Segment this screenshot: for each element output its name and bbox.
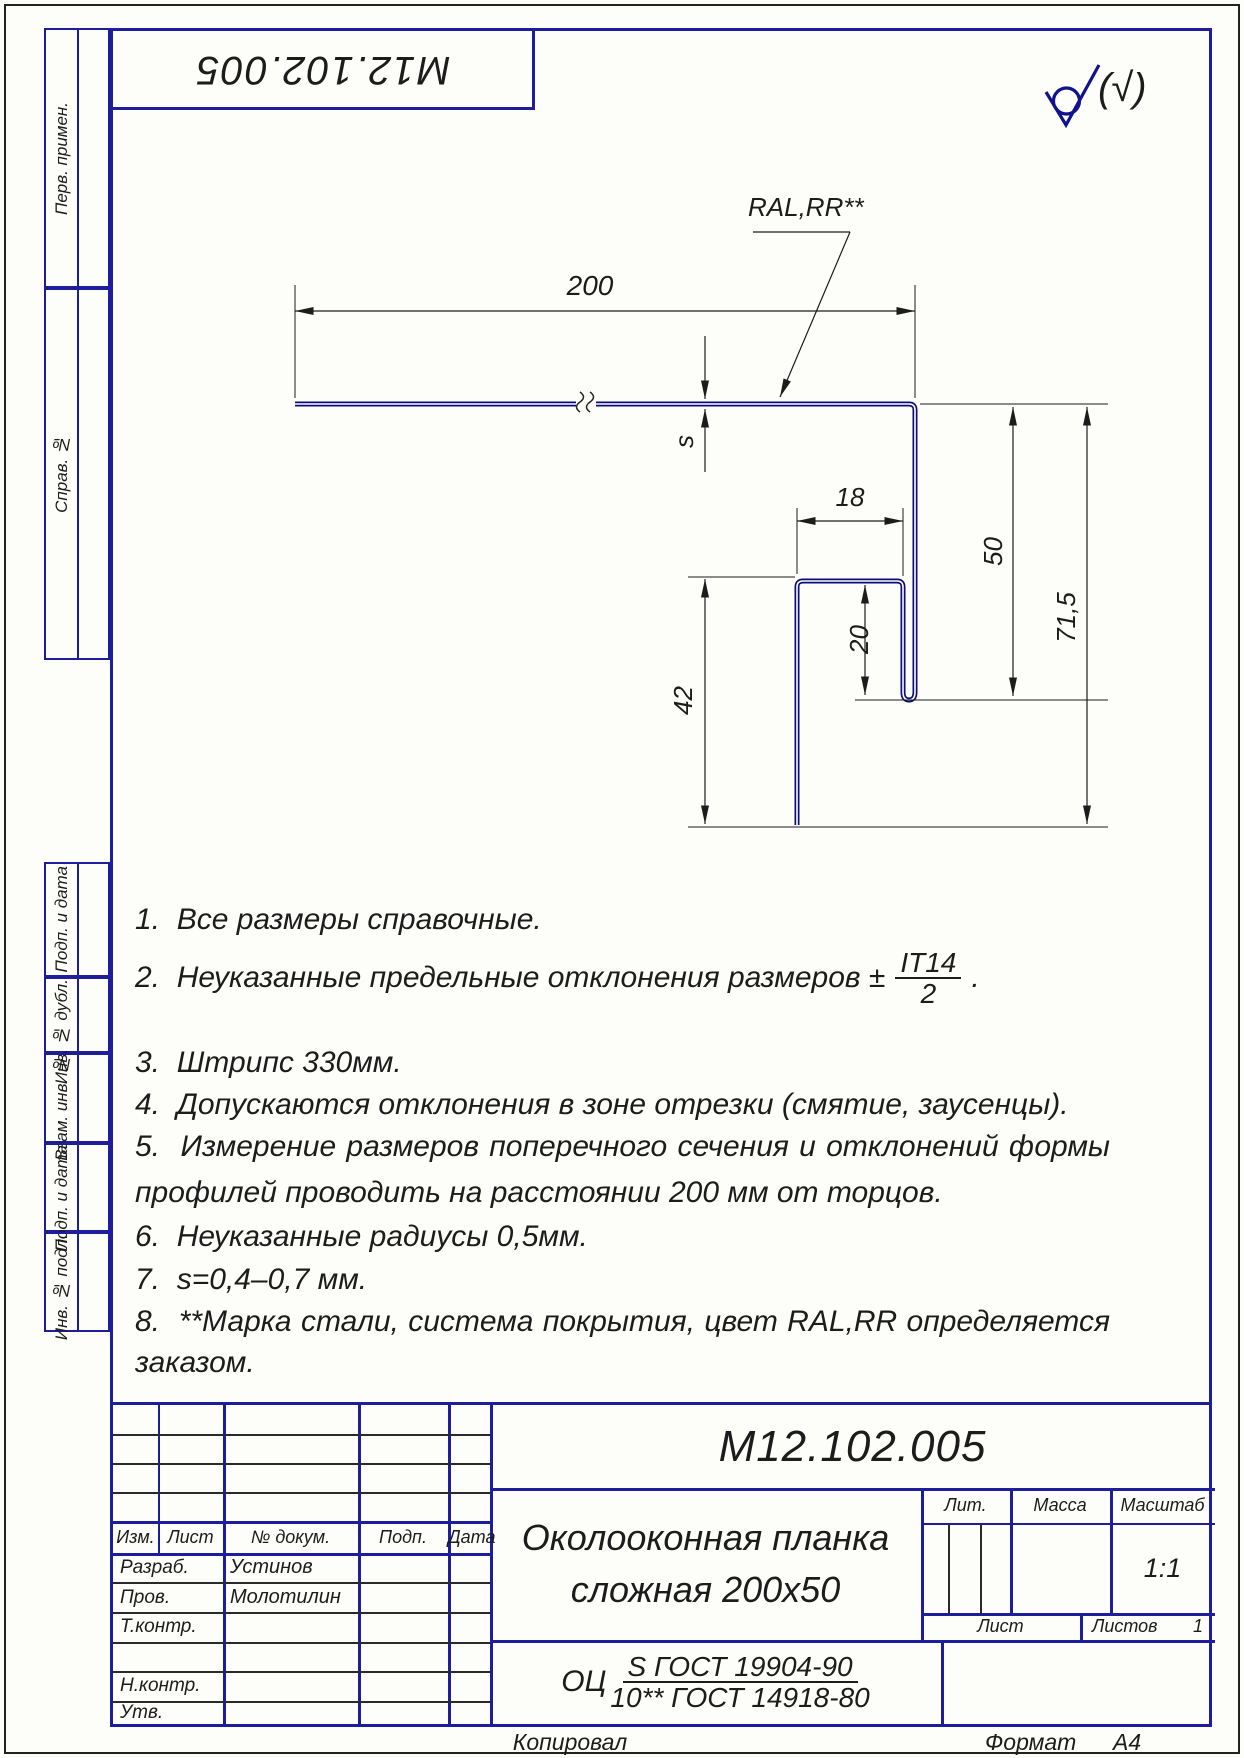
sheets-cell: Листов 1 [1080, 1613, 1215, 1640]
scale-value: 1:1 [1110, 1523, 1215, 1613]
leader-line [753, 232, 850, 397]
part-title: Околооконная планка сложная 200x50 [490, 1488, 921, 1640]
mass-label: Масса [1010, 1488, 1110, 1523]
sheets-label: Листов [1092, 1616, 1158, 1637]
role-ncontrol: Н.контр. [113, 1671, 230, 1700]
header-docnum: № докум. [223, 1521, 358, 1553]
format-value: А4 [1113, 1729, 1141, 1756]
role-approver: Утв. [113, 1701, 230, 1724]
material-denominator: 10** ГОСТ 14918-80 [610, 1683, 869, 1712]
role-checker: Пров. [113, 1583, 230, 1612]
scale-label: Масштаб [1110, 1488, 1215, 1523]
grid-line [941, 1640, 944, 1724]
dim-leg-label: 42 [667, 686, 698, 715]
note-7: 7. s=0,4–0,7 мм. [135, 1262, 1110, 1298]
grid-line [980, 1523, 982, 1613]
dim-total-label: 71,5 [1050, 592, 1081, 643]
note-2-text: 2. Неуказанные предельные отклонения раз… [135, 960, 885, 996]
role-developer: Разраб. [113, 1553, 230, 1582]
sheets-value: 1 [1193, 1616, 1203, 1637]
lit-label: Лит. [921, 1488, 1010, 1523]
material-fraction: S ГОСТ 19904-90 10** ГОСТ 14918-80 [610, 1652, 869, 1713]
drawing-sheet: М12.102.005 Перв. примен. Справ. № Подп.… [0, 0, 1244, 1758]
material-cell: ОЦ S ГОСТ 19904-90 10** ГОСТ 14918-80 [490, 1640, 941, 1724]
note-4: 4. Допускаются отклонения в зоне отрезки… [135, 1087, 1110, 1123]
dim-flange-label: 18 [805, 482, 895, 513]
note-6: 6. Неуказанные радиусы 0,5мм. [135, 1219, 1110, 1255]
material-prefix: ОЦ [561, 1665, 606, 1699]
header-date: Дата [448, 1521, 490, 1553]
grid-line [113, 1642, 490, 1644]
roughness-icon [1046, 65, 1099, 125]
grid-line [113, 1434, 490, 1436]
header-list: Лист [158, 1521, 223, 1553]
note-8-line2: заказом. [135, 1345, 1110, 1381]
grid-line [113, 1492, 490, 1494]
header-izm: Изм. [113, 1521, 158, 1553]
dim-width-label: 200 [520, 270, 660, 302]
sheet-label: Лист [921, 1613, 1080, 1640]
dim-depth-label: 50 [977, 537, 1008, 566]
fraction-denominator: 2 [921, 979, 937, 1008]
grid-line [113, 1463, 490, 1465]
grid-line [948, 1523, 950, 1613]
note-1: 1. Все размеры справочные. [135, 902, 1110, 938]
dim-lip-label: 20 [843, 625, 874, 654]
part-title-line1: Околооконная планка [522, 1517, 889, 1559]
note-2-fraction: IT14 2 [895, 948, 961, 1009]
copied-label: Копировал [460, 1729, 680, 1756]
role-tcontrol: Т.контр. [113, 1612, 230, 1641]
roughness-note: (√) [1098, 66, 1147, 111]
title-block: Изм. Лист № докум. Подп. Дата Разраб. Ус… [110, 1402, 1212, 1727]
name-checker: Молотилин [223, 1583, 365, 1612]
note-2-period: . [971, 960, 979, 996]
grid-line [448, 1405, 451, 1724]
material-numerator: S ГОСТ 19904-90 [623, 1652, 858, 1683]
profile-outline [295, 404, 915, 825]
note-5-line1: 5. Измерение размеров поперечного сечени… [135, 1129, 1110, 1165]
note-8-line1: 8. **Марка стали, система покрытия, цвет… [135, 1304, 1110, 1340]
dim-thickness-label: s [669, 435, 700, 448]
fraction-numerator: IT14 [895, 948, 961, 979]
part-title-line2: сложная 200x50 [571, 1569, 840, 1611]
coating-label: RAL,RR** [748, 192, 864, 223]
note-2: 2. Неуказанные предельные отклонения раз… [135, 948, 1110, 1009]
name-developer: Устинов [223, 1553, 365, 1582]
format-label: Формат [985, 1729, 1076, 1756]
note-3: 3. Штрипс 330мм. [135, 1045, 1110, 1081]
note-5-line2: профилей проводить на расстоянии 200 мм … [135, 1175, 1110, 1211]
break-symbol [576, 392, 596, 412]
header-sign: Подп. [358, 1521, 448, 1553]
designation: М12.102.005 [490, 1405, 1215, 1488]
